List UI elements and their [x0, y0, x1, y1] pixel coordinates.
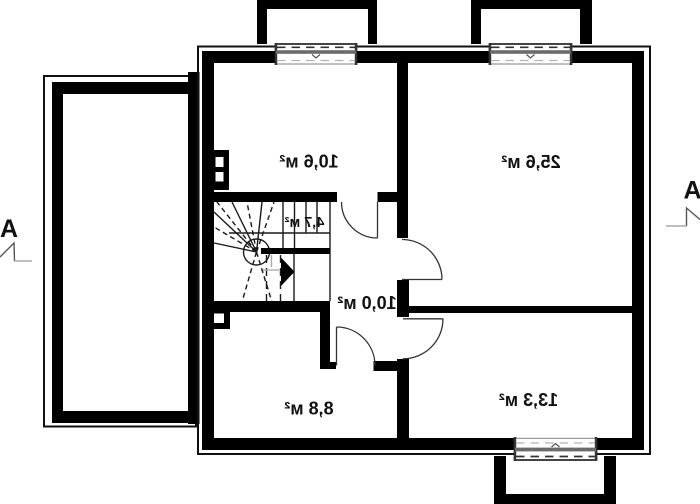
svg-text:10,0 м²: 10,0 м² [337, 293, 396, 313]
svg-text:A: A [0, 215, 18, 243]
svg-text:4,7 м²: 4,7 м² [284, 215, 324, 231]
svg-text:25,6 м²: 25,6 м² [501, 152, 560, 172]
svg-text:10,6 м²: 10,6 м² [279, 152, 338, 172]
svg-text:A: A [683, 176, 700, 204]
svg-text:8,8 м²: 8,8 м² [284, 399, 333, 419]
svg-text:13,3 м²: 13,3 м² [499, 390, 558, 410]
